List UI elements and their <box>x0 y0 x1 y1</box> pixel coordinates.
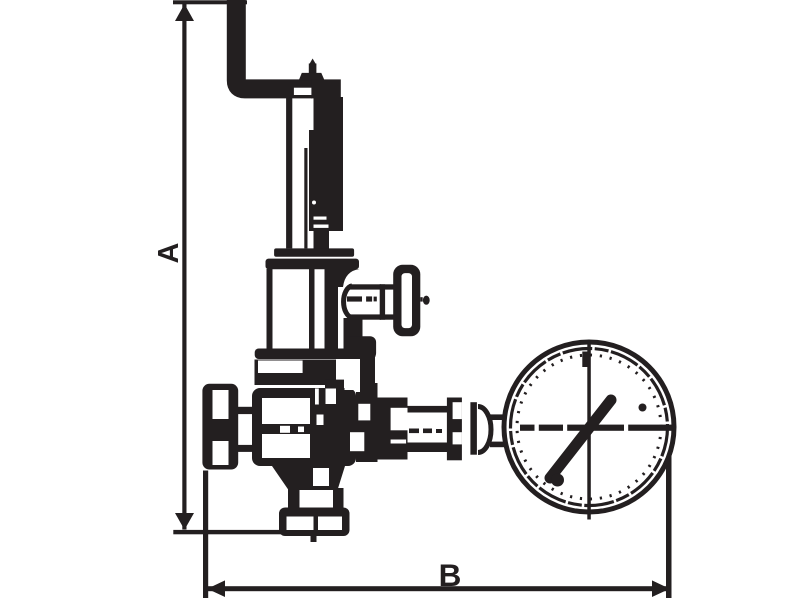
svg-text:B: B <box>439 557 462 593</box>
svg-text:A: A <box>153 242 185 263</box>
